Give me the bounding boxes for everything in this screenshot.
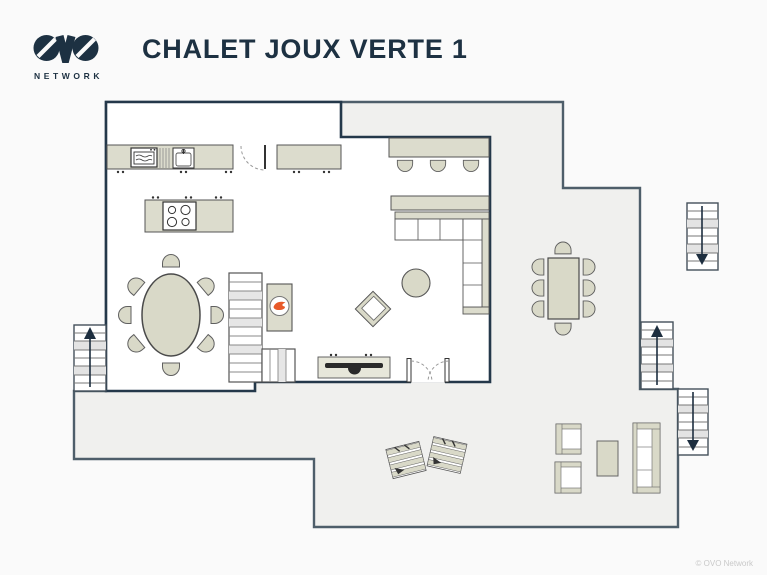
round-coffee-table xyxy=(402,269,430,297)
external-staircase-up-right xyxy=(641,322,673,389)
floor-plan xyxy=(0,0,767,575)
logo-subtext: NETWORK xyxy=(33,71,103,81)
ovo-network-logo: NETWORK xyxy=(33,33,103,81)
tv-unit xyxy=(318,354,390,378)
kitchen-counter-right xyxy=(277,145,341,173)
bar-counter xyxy=(389,138,489,157)
external-staircase-down-top-right xyxy=(687,203,718,270)
kitchen-island-hob xyxy=(145,196,233,232)
copyright-watermark: © OVO Network xyxy=(696,559,753,568)
kitchen-counter xyxy=(107,145,233,173)
ovo-logo-icon xyxy=(33,33,99,63)
external-staircase-down-right xyxy=(678,389,708,455)
sink-icon xyxy=(173,148,194,168)
outdoor-armchair-2 xyxy=(555,462,581,493)
sideboard xyxy=(391,196,489,210)
outdoor-armchair-1 xyxy=(556,424,581,454)
external-staircase-up-left xyxy=(74,325,106,391)
fireplace xyxy=(267,284,292,331)
bar-stools xyxy=(397,160,478,171)
outdoor-sofa xyxy=(633,423,660,493)
terrace-dining-table xyxy=(548,258,579,319)
outdoor-coffee-table xyxy=(597,441,618,476)
hob-icon xyxy=(163,202,196,230)
oven-icon xyxy=(131,148,157,167)
page-title: CHALET JOUX VERTE 1 xyxy=(142,34,468,65)
